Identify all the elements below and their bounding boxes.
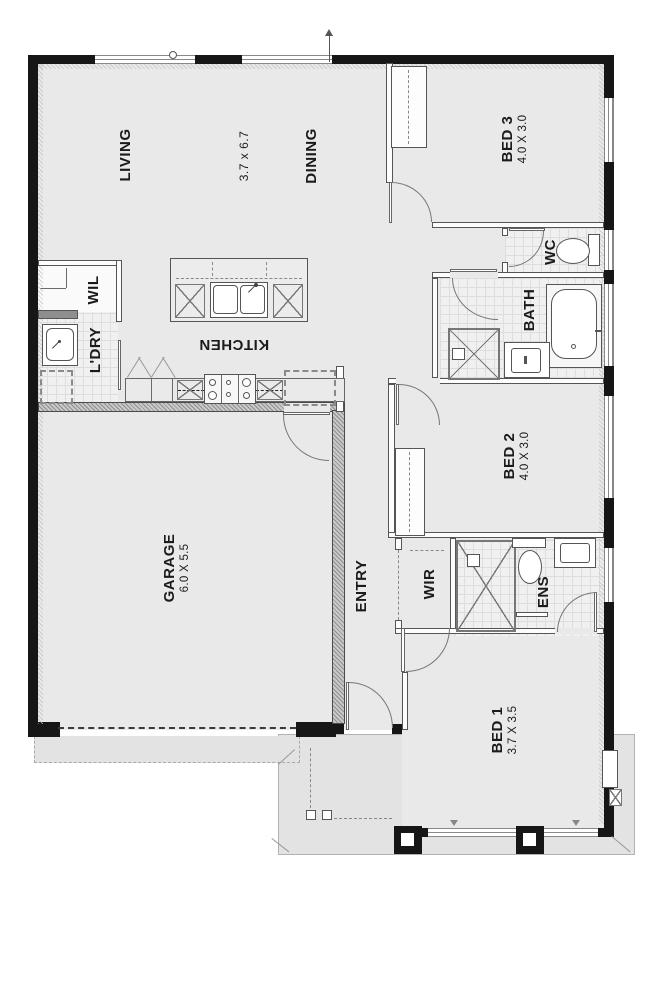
window-living-1: [95, 55, 195, 64]
bed3-robe: [391, 66, 427, 148]
room-label-garage: GARAGE 6.0 X 5.5: [161, 534, 193, 603]
wc-toilet-bowl: [556, 238, 590, 264]
ens-towel-rail: [516, 612, 548, 617]
bed1-name: BED 1: [489, 707, 506, 754]
wall-laundry-right: [116, 260, 122, 322]
bath-shower-head: [452, 348, 465, 360]
bench-xbox-right: [257, 380, 283, 400]
wil-shelf-line: [40, 288, 66, 289]
window-bed2: [604, 396, 614, 498]
room-label-dining: DINING: [303, 128, 321, 184]
island-xbox-right: [273, 284, 303, 318]
wil-floor: [38, 266, 118, 312]
bed3-dims: 4.0 X 3.0: [517, 115, 531, 164]
laundry-tap-dot: [58, 340, 61, 343]
bed3-name: BED 3: [499, 116, 516, 163]
bathtub-tap: [595, 330, 602, 332]
vent-stem: [329, 36, 330, 62]
cooktop-grid-1: [221, 375, 222, 403]
wall-bath-left: [432, 278, 438, 378]
room-label-bed3: BED 3 4.0 X 3.0: [499, 115, 531, 164]
wall-entry-front: [296, 724, 344, 734]
cooktop-grid-2: [238, 375, 239, 403]
window-living-2: [242, 55, 332, 64]
window-mark-2: [572, 820, 580, 826]
porch-post-2: [322, 810, 332, 820]
room-label-living: LIVING: [117, 128, 135, 181]
room-label-bed1: BED 1 3.7 X 3.5: [489, 706, 521, 755]
bench-divider-1: [151, 379, 152, 401]
porch-setout-dash-v: [310, 748, 311, 808]
room-label-wil: WIL: [85, 276, 103, 305]
wall-entry-front-nib: [392, 724, 402, 734]
driveway-apron: [34, 736, 300, 763]
bath-vanity-tap: [524, 356, 527, 364]
vent-arrow: [325, 29, 333, 36]
wir-shelf-dash: [410, 550, 444, 551]
garage-name: GARAGE: [161, 534, 178, 603]
meter-box: [609, 789, 622, 806]
bench-xbox-left: [177, 380, 203, 400]
wall-garage-entry: [332, 410, 345, 724]
ens-vanity-basin: [560, 543, 590, 563]
bed2-robe: [395, 448, 425, 536]
room-label-wc: WC: [542, 239, 560, 265]
window-ens: [604, 548, 614, 602]
burner-3: [242, 378, 251, 387]
porch-pillar-1-core: [401, 833, 414, 846]
room-label-wir: WIR: [421, 569, 439, 600]
island-sink-bowl-right: [240, 285, 265, 314]
burner-4: [208, 391, 217, 400]
porch-post-1: [306, 810, 316, 820]
island-xbox-left: [175, 284, 205, 318]
floor-plan: LIVING 3.7 x 6.7 DINING BED 3 4.0 X 3.0 …: [0, 0, 650, 1000]
room-label-bed2: BED 2 4.0 X 3.0: [501, 432, 533, 481]
bed2-dims: 4.0 X 3.0: [519, 432, 533, 481]
room-label-ens: ENS: [535, 576, 553, 608]
island-sink-bowl-left: [213, 285, 238, 314]
wall-wc-left-top: [502, 228, 508, 236]
island-div-dash-1: [212, 262, 213, 276]
laundry-door-leaf: [118, 340, 121, 390]
room-label-ldry: L'DRY: [87, 327, 105, 373]
bench-divider-2: [172, 379, 173, 401]
ens-shower-head: [467, 554, 480, 567]
downpipe-circle: [169, 51, 177, 59]
bath-door-leaf: [450, 269, 497, 272]
wall-left: [28, 55, 38, 737]
burner-1: [209, 379, 216, 386]
bed3-robe-slider: [408, 70, 409, 144]
bed1-door-leaf: [401, 628, 405, 672]
bed1-dims: 3.7 X 3.5: [507, 706, 521, 755]
wil-shelf-divider: [66, 268, 67, 288]
laundry-bench-edge: [38, 310, 78, 319]
fridge-space: [284, 370, 336, 406]
island-tap-dot: [254, 283, 258, 287]
room-label-kitchen: KITCHEN: [199, 335, 269, 353]
room-label-living-dims: 3.7 x 6.7: [237, 131, 251, 182]
bed2-name: BED 2: [501, 433, 518, 480]
wall-wil-top: [38, 260, 122, 266]
burner-6: [243, 392, 250, 399]
porch-setout-dash-h: [334, 818, 392, 819]
window-bath: [604, 284, 614, 366]
window-bed1-1: [428, 828, 518, 837]
porch-pillar-2-core: [523, 833, 536, 846]
washer-space: [40, 370, 73, 404]
lining-top: [38, 64, 604, 69]
bed2-door-gap: [396, 378, 440, 384]
room-label-entry: ENTRY: [353, 560, 371, 613]
garage-dims: 6.0 X 5.5: [179, 534, 193, 603]
wall-wir-left: [395, 538, 402, 550]
window-mark-1: [450, 820, 458, 826]
ens-toilet-cistern: [512, 538, 546, 548]
island-div-dash-2: [266, 262, 267, 276]
island-cabinet-dash: [176, 278, 302, 279]
wall-bed2-left: [388, 384, 395, 538]
meter-box-notch: [602, 750, 618, 788]
wir-slider-door: [398, 550, 399, 620]
window-bed3: [604, 98, 614, 162]
bathtub-drain: [571, 344, 576, 349]
room-label-bath: BATH: [521, 289, 539, 332]
laundry-tub-bowl: [46, 328, 74, 361]
bed2-robe-slider: [409, 452, 410, 532]
burner-5: [226, 392, 231, 397]
window-wc: [604, 230, 614, 270]
ens-shower: [456, 540, 516, 632]
wall-garage-corner-left: [38, 722, 60, 737]
wall-bed1-left: [402, 672, 408, 730]
burner-2: [226, 380, 231, 385]
garage-door-line: [58, 727, 296, 729]
window-bed1-2: [542, 828, 598, 837]
